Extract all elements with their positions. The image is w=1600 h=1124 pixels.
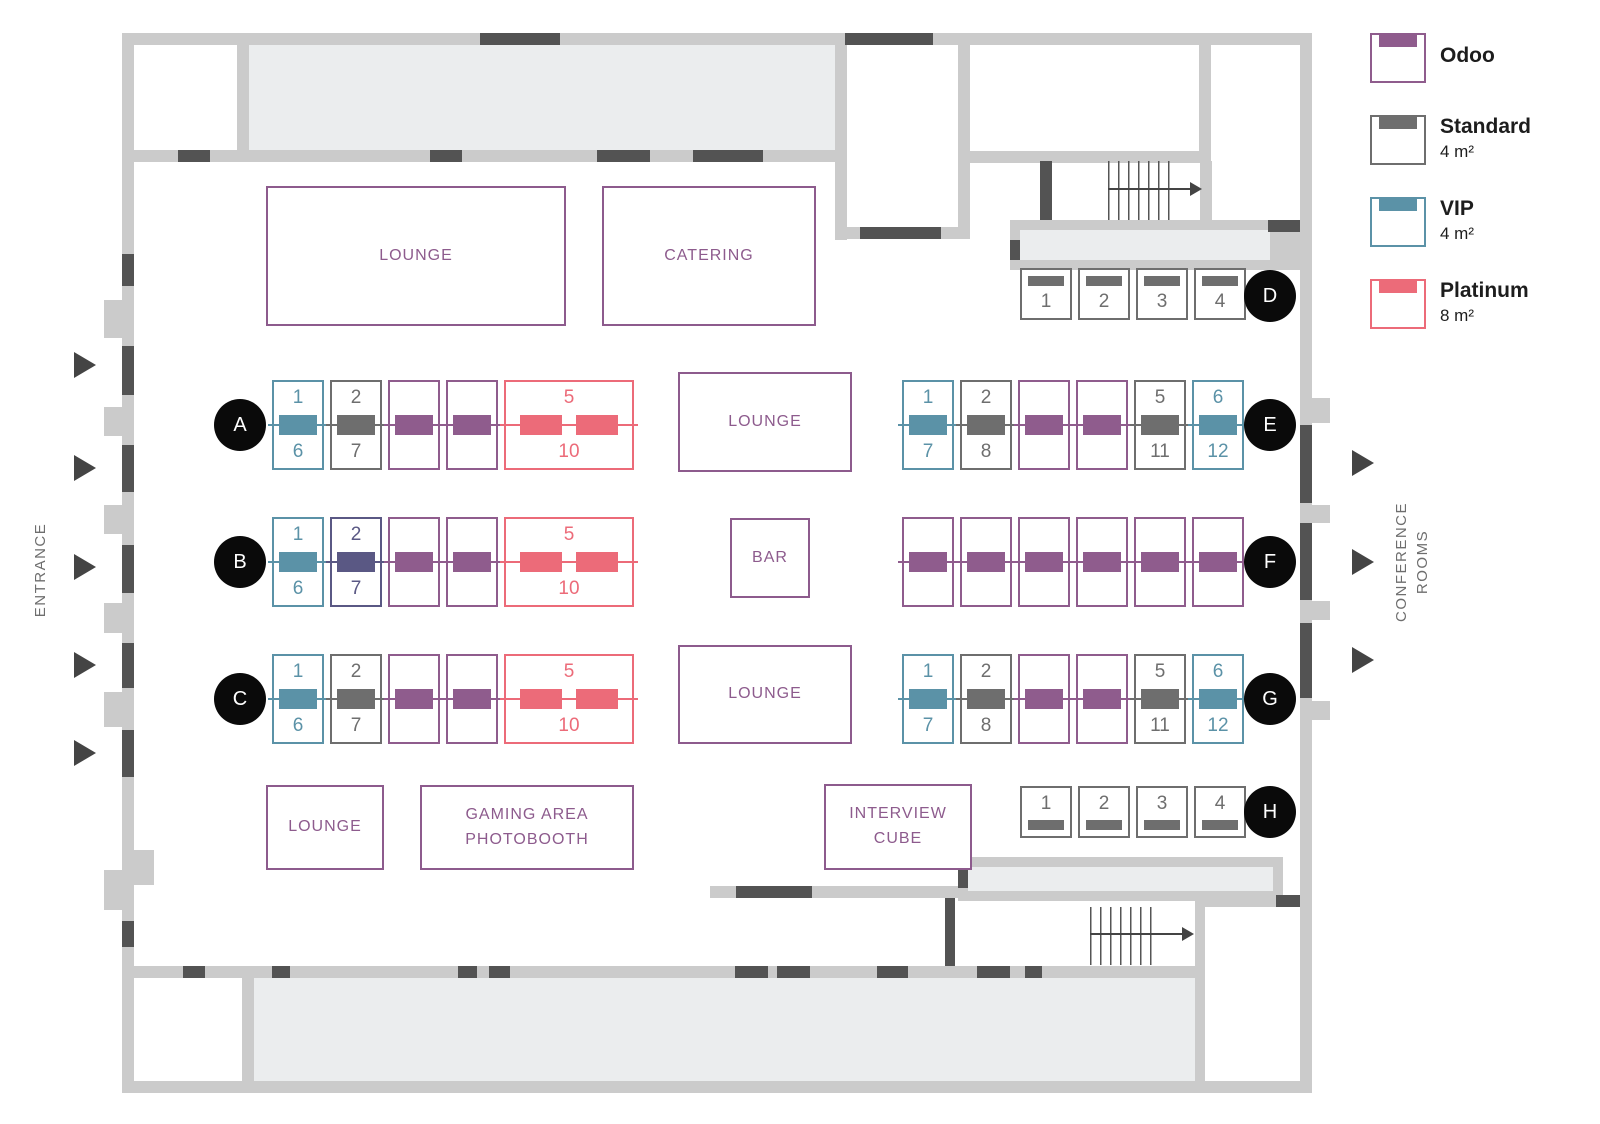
door-27 <box>458 966 477 978</box>
booth-number-top: 1 <box>904 661 952 683</box>
booth-table <box>520 415 562 435</box>
booth-table <box>453 689 491 709</box>
legend-swatch-bar <box>1379 199 1417 211</box>
booth-G-1[interactable]: 17 <box>902 654 954 744</box>
entrance-arrow-icon <box>74 352 96 378</box>
booth-table <box>1025 415 1063 435</box>
booth-table <box>1086 276 1122 286</box>
door-12 <box>122 346 134 395</box>
booth-number: 4 <box>1196 291 1244 313</box>
booth-number-top: 2 <box>962 661 1010 683</box>
legend-label-odoo: Odoo <box>1440 44 1495 68</box>
booth-table <box>395 415 433 435</box>
wall-bottom <box>122 1081 1312 1093</box>
row-label-G: G <box>1244 673 1296 725</box>
area-bar: BAR <box>730 518 810 598</box>
entrance-arrow-icon <box>74 652 96 678</box>
corridor-h-fill <box>968 867 1273 891</box>
wall-room-divider <box>958 45 970 227</box>
booth-table <box>453 552 491 572</box>
booth-D-2[interactable]: 2 <box>1078 268 1130 320</box>
stairs-bottom-arrow <box>1090 933 1184 935</box>
booth-number-bottom: 7 <box>332 715 380 737</box>
pillar-left-2 <box>104 407 123 436</box>
wall-topleft-divider <box>237 45 249 150</box>
booth-H-4[interactable]: 4 <box>1194 786 1246 838</box>
booth-table <box>279 552 317 572</box>
booth-number-top: 1 <box>274 661 322 683</box>
booth-table <box>909 415 947 435</box>
booth-table <box>576 415 618 435</box>
door-20 <box>1300 623 1312 698</box>
door-6 <box>693 150 763 162</box>
booth-table <box>1025 552 1063 572</box>
booth-table <box>453 415 491 435</box>
booth-table <box>1028 276 1064 286</box>
booth-A-1[interactable]: 16 <box>272 380 324 470</box>
booth-table <box>909 552 947 572</box>
door-33 <box>1025 966 1042 978</box>
booth-B-2[interactable]: 27 <box>330 517 382 607</box>
entrance-arrow-icon <box>74 554 96 580</box>
booth-table <box>1199 415 1237 435</box>
door-7 <box>860 227 941 239</box>
booth-table <box>1028 820 1064 830</box>
door-25 <box>183 966 205 978</box>
conference-arrow-icon <box>1352 647 1374 673</box>
booth-number-bottom: 7 <box>904 441 952 463</box>
booth-C-2[interactable]: 27 <box>330 654 382 744</box>
booth-table <box>279 415 317 435</box>
booth-number: 1 <box>1022 793 1070 815</box>
booth-number-top: 1 <box>274 387 322 409</box>
booth-B-5[interactable]: 510 <box>504 517 634 607</box>
booth-number-bottom: 6 <box>274 441 322 463</box>
door-19 <box>1300 523 1312 600</box>
area-label: CUBE <box>849 827 947 852</box>
booth-B-1[interactable]: 16 <box>272 517 324 607</box>
booth-table <box>1202 276 1238 286</box>
booth-number: 4 <box>1196 793 1244 815</box>
pillar-right-2 <box>1312 505 1330 523</box>
booth-number-bottom: 12 <box>1194 441 1242 463</box>
area-gaming-photobooth: GAMING AREA PHOTOBOOTH <box>420 785 634 870</box>
booth-H-3[interactable]: 3 <box>1136 786 1188 838</box>
booth-table <box>1083 552 1121 572</box>
booth-number-top: 5 <box>506 661 632 683</box>
door-28 <box>489 966 510 978</box>
room-bottom-corridor <box>254 978 1195 1081</box>
door-23 <box>958 867 968 888</box>
row-label-D: D <box>1244 270 1296 322</box>
booth-table <box>1202 820 1238 830</box>
legend-swatch-bar <box>1379 117 1417 129</box>
booth-number-top: 6 <box>1194 387 1242 409</box>
door-8 <box>1040 161 1052 220</box>
area-lounge-lower: LOUNGE <box>678 645 852 744</box>
area-label: GAMING AREA <box>465 803 589 828</box>
booth-F-4[interactable] <box>1076 517 1128 607</box>
row-label-H: H <box>1244 786 1296 838</box>
door-14 <box>122 545 134 593</box>
row-label-C: C <box>214 673 266 725</box>
door-5 <box>597 150 650 162</box>
booth-table <box>279 689 317 709</box>
conference-arrow-icon <box>1352 450 1374 476</box>
booth-table <box>1025 689 1063 709</box>
booth-E-6[interactable]: 612 <box>1192 380 1244 470</box>
door-9 <box>1010 240 1020 260</box>
booth-C-1[interactable]: 16 <box>272 654 324 744</box>
door-18 <box>1300 425 1312 503</box>
booth-G-4[interactable] <box>1076 654 1128 744</box>
row-label-A: A <box>214 399 266 451</box>
booth-table <box>1141 415 1179 435</box>
legend-label-standard: Standard <box>1440 115 1531 139</box>
booth-number-top: 5 <box>506 387 632 409</box>
booth-E-3[interactable] <box>1018 380 1070 470</box>
booth-table <box>1144 820 1180 830</box>
booth-table <box>967 552 1005 572</box>
booth-number-top: 6 <box>1194 661 1242 683</box>
area-label: LOUNGE <box>379 244 453 269</box>
booth-table <box>395 689 433 709</box>
stairs-top <box>1108 161 1178 220</box>
area-label: CATERING <box>664 244 753 269</box>
booth-E-2[interactable]: 28 <box>960 380 1012 470</box>
pillar-right-3 <box>1312 601 1330 620</box>
booth-number-bottom: 7 <box>332 441 380 463</box>
door-1 <box>480 33 560 45</box>
conference-label-line2: ROOMS <box>1412 462 1433 662</box>
door-17 <box>122 921 134 947</box>
booth-G-6[interactable]: 612 <box>1192 654 1244 744</box>
booth-number-top: 2 <box>332 661 380 683</box>
legend-label-platinum: Platinum <box>1440 279 1529 303</box>
pillar-left-6 <box>104 870 134 910</box>
pillar-left-3 <box>104 505 123 534</box>
pillar-right-1 <box>1312 398 1330 423</box>
booth-table <box>967 689 1005 709</box>
booth-number-top: 2 <box>332 524 380 546</box>
area-catering: CATERING <box>602 186 816 326</box>
legend-size-platinum: 8 m² <box>1440 306 1474 326</box>
booth-F-5[interactable] <box>1134 517 1186 607</box>
conference-arrow-icon <box>1352 549 1374 575</box>
booth-G-5[interactable]: 511 <box>1134 654 1186 744</box>
booth-number-bottom: 6 <box>274 715 322 737</box>
legend-swatch-standard <box>1370 115 1426 165</box>
booth-table <box>1083 689 1121 709</box>
door-30 <box>777 966 810 978</box>
booth-B-4[interactable] <box>446 517 498 607</box>
booth-table <box>1199 689 1237 709</box>
legend-size-standard: 4 m² <box>1440 142 1474 162</box>
legend-label-vip: VIP <box>1440 197 1474 221</box>
booth-number-top: 5 <box>506 524 632 546</box>
booth-table <box>337 689 375 709</box>
booth-table <box>967 415 1005 435</box>
door-26 <box>272 966 290 978</box>
booth-number: 3 <box>1138 793 1186 815</box>
booth-number: 2 <box>1080 793 1128 815</box>
area-label: PHOTOBOOTH <box>465 828 589 853</box>
booth-number-top: 1 <box>904 387 952 409</box>
door-32 <box>977 966 1010 978</box>
wall-bottomright-vertical <box>1195 895 1205 1081</box>
area-lounge-top: LOUNGE <box>266 186 566 326</box>
booth-number-top: 2 <box>962 387 1010 409</box>
booth-A-5[interactable]: 510 <box>504 380 634 470</box>
booth-D-3[interactable]: 3 <box>1136 268 1188 320</box>
booth-table <box>337 552 375 572</box>
pillar-left-1 <box>104 300 134 338</box>
legend-swatch-bar <box>1379 281 1417 293</box>
wall-top <box>122 33 1312 45</box>
door-29 <box>735 966 768 978</box>
booth-number-top: 5 <box>1136 661 1184 683</box>
pillar-left-7 <box>134 850 154 885</box>
booth-E-5[interactable]: 511 <box>1134 380 1186 470</box>
door-22 <box>945 898 955 966</box>
legend-swatch-odoo <box>1370 33 1426 83</box>
booth-number-bottom: 11 <box>1136 715 1184 737</box>
booth-F-3[interactable] <box>1018 517 1070 607</box>
wall-topright-vertical <box>835 45 847 240</box>
booth-G-2[interactable]: 28 <box>960 654 1012 744</box>
conference-label-line1: CONFERENCE <box>1391 462 1412 662</box>
room-top-corridor <box>249 45 835 150</box>
floor-plan-canvas: LOUNGE CATERING LOUNGE BAR LOUNGE LOUNGE… <box>0 0 1600 1124</box>
booth-table <box>1086 820 1122 830</box>
area-label: LOUNGE <box>728 410 802 435</box>
booth-table <box>337 415 375 435</box>
booth-table <box>520 689 562 709</box>
corridor-d-fill <box>1020 230 1270 260</box>
door-2 <box>845 33 933 45</box>
entrance-arrow-icon <box>74 455 96 481</box>
area-label: LOUNGE <box>288 815 362 840</box>
booth-E-4[interactable] <box>1076 380 1128 470</box>
stairs-bottom-arrow-head <box>1182 927 1194 941</box>
legend-swatch-platinum <box>1370 279 1426 329</box>
booth-table <box>909 689 947 709</box>
door-21 <box>736 886 812 898</box>
pillar-right-4 <box>1312 701 1330 720</box>
booth-table <box>520 552 562 572</box>
booth-number-bottom: 7 <box>904 715 952 737</box>
door-11 <box>122 254 134 286</box>
door-16 <box>122 730 134 777</box>
booth-table <box>1141 689 1179 709</box>
door-3 <box>178 150 210 162</box>
door-15 <box>122 643 134 688</box>
booth-table <box>576 689 618 709</box>
door-4 <box>430 150 462 162</box>
area-lounge-bottom: LOUNGE <box>266 785 384 870</box>
booth-F-2[interactable] <box>960 517 1012 607</box>
booth-A-2[interactable]: 27 <box>330 380 382 470</box>
booth-number-bottom: 12 <box>1194 715 1242 737</box>
wall-bottomleft-divider <box>242 978 254 1081</box>
area-interview-cube: INTERVIEW CUBE <box>824 784 972 870</box>
pillar-left-4 <box>104 603 123 633</box>
booth-number: 3 <box>1138 291 1186 313</box>
booth-number-bottom: 7 <box>332 578 380 600</box>
entrance-arrow-icon <box>74 740 96 766</box>
area-label: BAR <box>752 546 788 571</box>
booth-A-4[interactable] <box>446 380 498 470</box>
booth-E-1[interactable]: 17 <box>902 380 954 470</box>
booth-C-4[interactable] <box>446 654 498 744</box>
wall-room-divider-2 <box>1199 45 1211 163</box>
pillar-left-5 <box>104 692 123 727</box>
row-label-E: E <box>1244 399 1296 451</box>
booth-D-1[interactable]: 1 <box>1020 268 1072 320</box>
row-label-F: F <box>1244 536 1296 588</box>
booth-number: 1 <box>1022 291 1070 313</box>
legend-swatch-vip <box>1370 197 1426 247</box>
area-label: INTERVIEW <box>849 802 947 827</box>
entrance-label: ENTRANCE <box>30 460 50 680</box>
booth-A-3[interactable] <box>388 380 440 470</box>
booth-table <box>1144 276 1180 286</box>
stairs-top-arrow <box>1108 188 1192 190</box>
booth-table <box>1141 552 1179 572</box>
area-label: LOUNGE <box>728 682 802 707</box>
stairs-bottom <box>1090 907 1160 965</box>
booth-C-3[interactable] <box>388 654 440 744</box>
door-10 <box>1268 220 1300 232</box>
booth-G-3[interactable] <box>1018 654 1070 744</box>
area-lounge-middle: LOUNGE <box>678 372 852 472</box>
booth-number-bottom: 11 <box>1136 441 1184 463</box>
booth-H-2[interactable]: 2 <box>1078 786 1130 838</box>
booth-C-5[interactable]: 510 <box>504 654 634 744</box>
booth-D-4[interactable]: 4 <box>1194 268 1246 320</box>
booth-number-top: 5 <box>1136 387 1184 409</box>
booth-number-bottom: 8 <box>962 715 1010 737</box>
door-31 <box>877 966 908 978</box>
door-24 <box>1276 895 1300 907</box>
booth-F-6[interactable] <box>1192 517 1244 607</box>
booth-table <box>1199 552 1237 572</box>
booth-number-bottom: 6 <box>274 578 322 600</box>
legend-size-vip: 4 m² <box>1440 224 1474 244</box>
booth-number-bottom: 10 <box>506 441 632 463</box>
door-13 <box>122 445 134 492</box>
booth-number-bottom: 8 <box>962 441 1010 463</box>
booth-F-1[interactable] <box>902 517 954 607</box>
booth-H-1[interactable]: 1 <box>1020 786 1072 838</box>
booth-table <box>576 552 618 572</box>
booth-B-3[interactable] <box>388 517 440 607</box>
stairs-top-arrow-head <box>1190 182 1202 196</box>
booth-number-top: 1 <box>274 524 322 546</box>
booth-table <box>1083 415 1121 435</box>
booth-number-bottom: 10 <box>506 715 632 737</box>
row-label-B: B <box>214 536 266 588</box>
booth-number: 2 <box>1080 291 1128 313</box>
conference-rooms-label: CONFERENCE ROOMS <box>1391 462 1433 662</box>
booth-number-bottom: 10 <box>506 578 632 600</box>
legend-swatch-bar <box>1379 35 1417 47</box>
booth-number-top: 2 <box>332 387 380 409</box>
booth-table <box>395 552 433 572</box>
